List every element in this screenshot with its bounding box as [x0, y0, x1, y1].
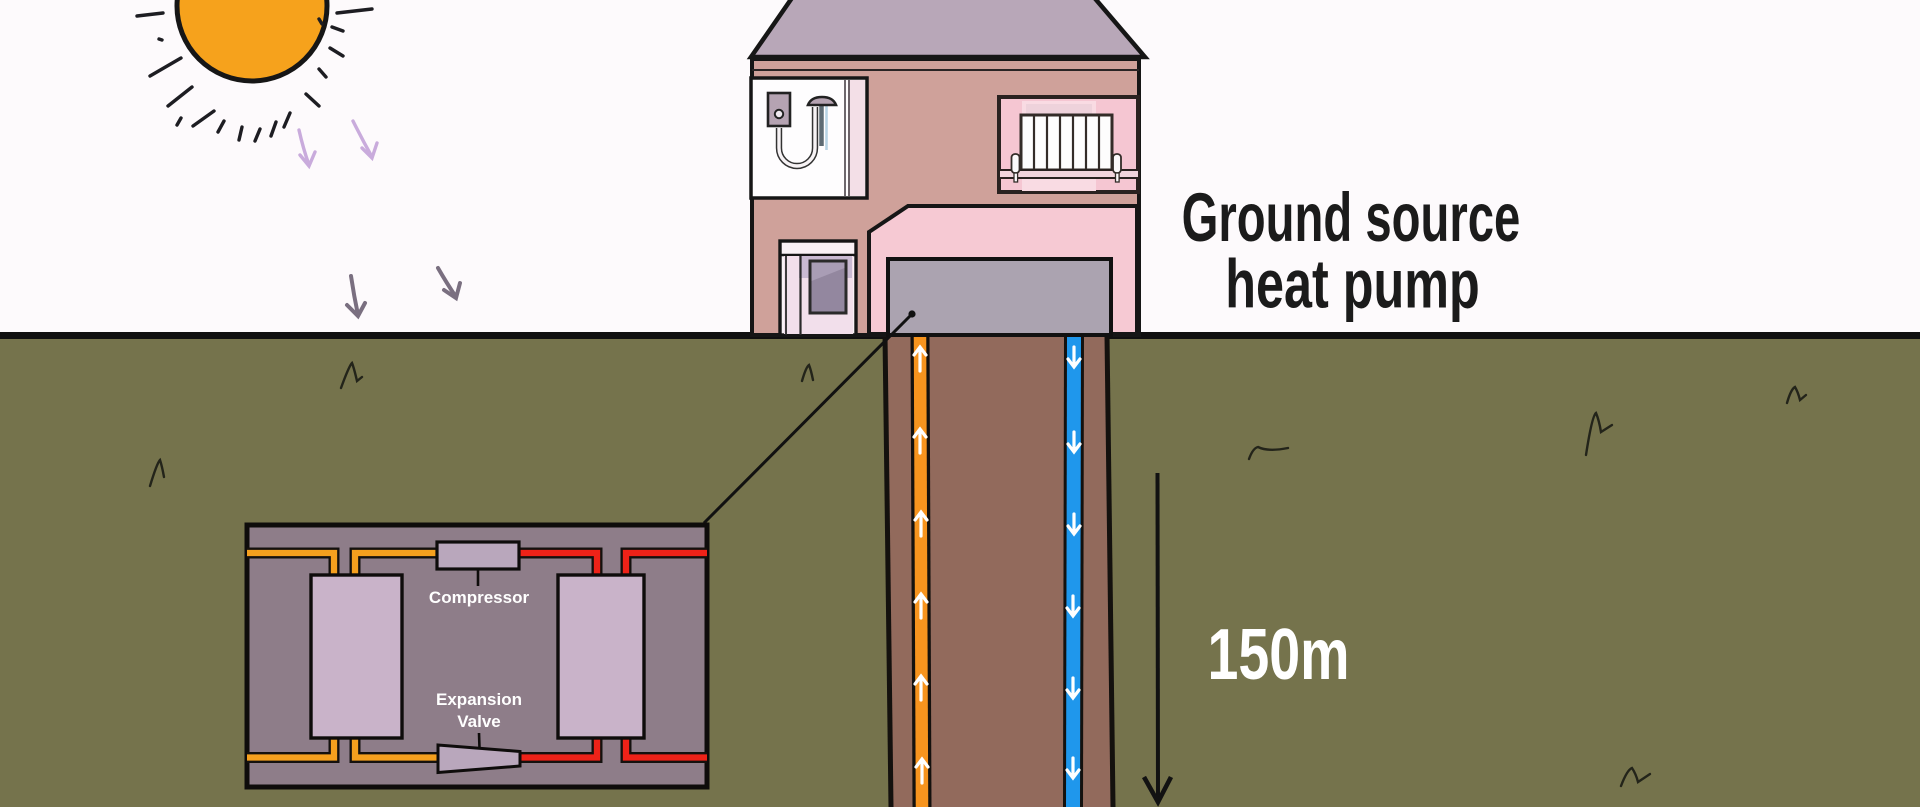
svg-text:Ground source: Ground source [1182, 180, 1521, 256]
svg-text:Valve: Valve [457, 712, 501, 731]
svg-text:Compressor: Compressor [429, 588, 530, 607]
svg-text:150m: 150m [1207, 613, 1349, 695]
svg-text:Expansion: Expansion [436, 690, 522, 709]
svg-text:heat pump: heat pump [1225, 246, 1480, 322]
